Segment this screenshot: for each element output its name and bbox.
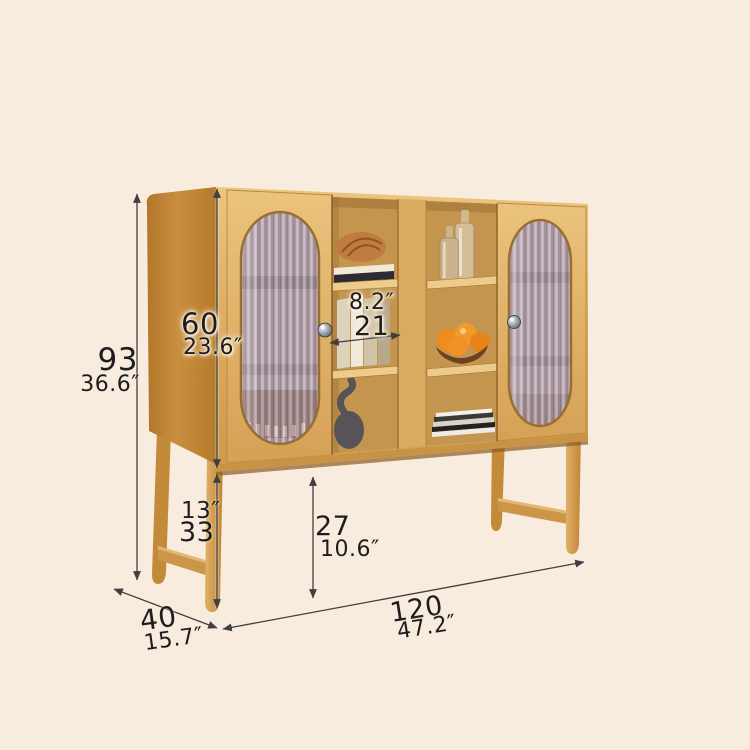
front-right-leg (566, 430, 581, 554)
orange-highlight (460, 328, 466, 334)
left-glass-door (227, 190, 332, 463)
orange (448, 336, 468, 356)
product-dimension-image: 93 36.6″ 60 23.6″ 8.2″ 21 13″ 33 27 10.6… (0, 0, 750, 750)
knob-highlight (321, 325, 325, 329)
shelf-width-cm-label: 21 (354, 313, 389, 340)
clearance-cm-label: 27 (315, 513, 350, 540)
clearance-inch-label: 10.6″ (320, 539, 380, 561)
orange (470, 332, 490, 352)
knob-highlight (510, 318, 514, 322)
right-glass-door (497, 203, 586, 441)
bottle-highlight (459, 228, 462, 276)
bottle-highlight (443, 242, 446, 278)
glass-bottle-short (440, 238, 458, 281)
cabinet-height-inch-label: 23.6″ (183, 337, 243, 359)
sculpture-vase (334, 411, 364, 449)
overall-height-inch-label: 36.6″ (80, 374, 140, 396)
left-door-glass (235, 208, 325, 448)
left-door-knob (318, 323, 332, 337)
center-divider (398, 199, 426, 449)
leg-height-cm-label: 33 (179, 519, 214, 546)
right-door-knob (508, 316, 521, 329)
